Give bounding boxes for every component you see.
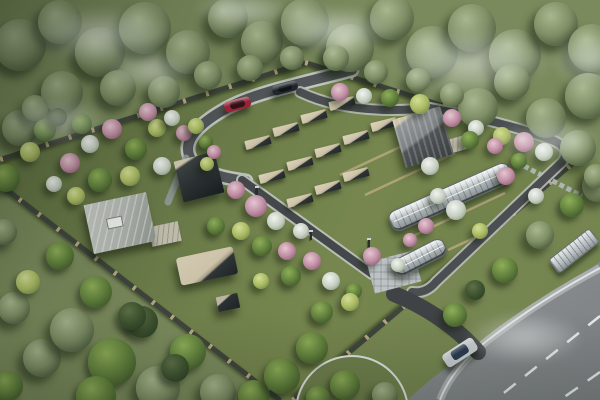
plot-strip-3 [390,173,480,215]
tree-green [88,338,136,386]
tree-forest [100,70,136,106]
entrance-driveway [394,294,478,352]
tree-forest [194,61,222,89]
trees-layer [0,0,600,400]
paver-path-1 [452,92,486,120]
grass-island [296,356,408,400]
lane-dash-a [495,316,600,400]
tree-green [346,283,362,299]
tree-lime [200,157,214,171]
tree-pink [60,153,80,173]
tree-forest [326,24,374,72]
tree-forest [560,130,596,166]
tree-dark [49,108,67,126]
fence-se [291,149,590,400]
tree-white [430,188,446,204]
car-body-highlight [441,336,475,361]
fog-patch [25,7,175,63]
garden-plot [286,192,313,207]
tree-lime [120,166,140,186]
terrace [148,221,182,247]
tree-forest [372,382,398,400]
black-car [271,80,299,96]
tree-forest [200,374,236,400]
garden-plot [314,179,341,194]
tree-forest [582,170,600,202]
tree-green [306,386,330,400]
forest-ground [0,0,600,400]
car-body-highlight [223,95,250,107]
tree-green [80,276,112,308]
tree-pink [245,195,267,217]
tree-green [443,303,467,327]
lane-dash-b [560,372,600,400]
tree-lime [253,273,269,289]
fence-sw [0,183,282,400]
tree-lime [188,118,204,134]
tree-forest [458,88,498,128]
tree-dark [126,306,158,338]
tree-dark [465,280,485,300]
tree-white [356,88,372,104]
garden-plot [370,116,397,131]
tree-green [199,135,213,149]
garden-plot [244,134,271,149]
compound-lawn [0,0,600,400]
tree-lime [410,94,430,114]
tree-forest [448,4,496,52]
tree-white [391,258,405,272]
tree-lime [232,222,250,240]
lamp-post [368,240,370,248]
tree-green [207,217,225,235]
low-pavilion [176,246,239,285]
tree-forest [241,21,283,63]
tree-green [46,242,74,270]
tree-green [76,376,116,400]
tree-green [492,257,518,283]
plot-strip-4 [415,193,505,235]
structures-layer [0,0,600,400]
garden-plot [300,108,327,123]
tree-green [381,89,399,107]
fence-nw [0,60,306,162]
tree-forest [136,366,180,400]
main-road [408,262,600,400]
metal-roof-house [84,192,157,254]
tree-pink [139,103,157,121]
tree-lime [148,119,166,137]
tree-lime [493,127,511,145]
roadside-verge [0,0,600,400]
road-edge-line [440,268,600,400]
lamp-post [310,232,312,240]
paver-path-2 [524,166,582,196]
tree-white [528,188,544,204]
fog-patch [464,312,584,364]
tree-pink [227,181,245,199]
tree-pink [418,218,434,234]
tree-pink [207,145,221,159]
tree-green [0,164,20,192]
tree-forest [148,76,180,108]
tree-lime [16,270,40,294]
tree-forest [23,339,61,377]
car-cabin [229,99,244,110]
tree-forest [565,73,600,119]
tree-white [535,143,553,161]
entry-plaza [367,250,422,293]
tree-forest [75,27,125,77]
garden-plot [328,95,355,110]
tree-forest [41,71,83,113]
glass-shelter [548,228,600,274]
tree-forest [208,0,248,38]
garden-plot [258,168,285,183]
aerial-render-scene [0,0,600,400]
tree-lime [20,142,40,162]
fog-patch [275,6,395,54]
tree-forest [2,110,38,146]
tree-forest [440,83,464,107]
tree-forest [323,45,349,71]
tree-lime [472,223,488,239]
gray-cube-building [392,106,454,168]
tree-green [88,168,112,192]
lawn-shading [0,0,600,400]
tree-forest [0,219,17,245]
light-vignette [0,0,600,400]
tree-forest [0,19,46,71]
tree-pink [514,132,534,152]
lamp-post [566,150,568,158]
lamp-post [480,116,482,124]
tree-forest [119,2,171,54]
tree-forest [526,221,554,249]
ne-branch-asphalt [300,92,565,292]
tree-forest [526,98,566,138]
outer-grass [0,0,600,400]
tree-forest [280,46,304,70]
tree-forest [584,164,600,188]
greenhouse [386,160,515,233]
fog-patch [385,28,555,96]
tree-dark [161,354,189,382]
fog-patch [193,0,293,28]
tree-pink [443,109,461,127]
tree-forest [166,30,210,74]
tree-green [311,301,333,323]
tree-forest [237,55,263,81]
tree-pink [363,247,381,265]
tree-green [461,131,479,149]
tree-white [267,212,285,230]
car-cabin [278,83,293,93]
tree-white [421,157,439,175]
tree-white [164,110,180,126]
fog-patch [550,34,600,86]
tree-pink [487,138,503,154]
car-body-highlight [271,80,297,91]
tree-forest [534,2,578,46]
car-cabin [449,343,470,361]
tree-pink [403,233,417,247]
fog-patch [498,118,598,162]
tree-white [46,176,62,192]
tree-lime [341,293,359,311]
tree-pink [303,252,321,270]
cars-layer [0,0,600,400]
silver-car [441,336,479,368]
tree-white [446,200,466,220]
spine-curb [242,180,372,274]
garden-plot [342,129,369,144]
terrace-connector [168,158,186,202]
red-car [223,95,252,113]
tree-forest [370,0,414,40]
roads-svg [0,0,600,400]
tree-white [153,157,171,175]
garden-plot [342,166,369,181]
garden-plot [314,142,341,157]
garden-plot [286,155,313,170]
tree-dark [118,302,146,330]
curb-strip [440,268,600,400]
tree-green [34,119,56,141]
tree-white [81,135,99,153]
tree-white [322,272,340,290]
tree-forest [489,29,541,81]
tree-green [296,332,328,364]
tree-pink [176,125,192,141]
plot-strip-2 [365,153,455,195]
tree-green [264,358,300,394]
tree-green [252,236,272,256]
tree-green [72,114,92,134]
tree-forest [364,60,388,84]
tree-pink [278,242,296,260]
garden-plot [272,121,299,136]
tree-forest [406,68,430,92]
tree-forest [22,95,48,121]
tree-green [125,138,147,160]
tree-forest [281,0,329,46]
tree-pink [497,167,515,185]
loop-road-asphalt [188,70,352,181]
ne-branch-curb [300,92,565,292]
steps-gray-cube [442,135,467,155]
plot-strip-5 [448,225,502,250]
garden-shed-box [216,293,241,312]
tree-forest [406,26,458,78]
lamp-post [256,188,258,196]
tree-white [293,223,309,239]
tree-forest [568,24,600,72]
fog-patch [105,50,195,90]
tree-green [0,371,23,400]
tree-green [511,153,527,169]
tree-green [560,193,584,217]
lamp-post [338,88,340,96]
tree-green [238,380,270,400]
greenhouse [391,236,450,278]
tree-green [170,334,206,370]
plot-strip-1 [340,133,430,175]
tree-forest [0,292,30,324]
fence-ne [304,60,582,151]
tree-white [468,120,484,136]
tree-lime [67,187,85,205]
tree-forest [494,64,530,100]
fog-patch [8,98,108,142]
tree-pink [102,119,122,139]
loop-road-curb [188,70,352,181]
dark-cube-building [174,152,225,203]
tree-green [330,370,360,400]
spine-asphalt [242,180,372,274]
tree-pink [331,83,349,101]
main-road-sheen [408,262,600,400]
tree-forest [50,308,94,352]
fog-layer [0,0,600,400]
tree-green [281,266,301,286]
fence-layer [0,0,600,400]
tree-forest [38,0,82,44]
